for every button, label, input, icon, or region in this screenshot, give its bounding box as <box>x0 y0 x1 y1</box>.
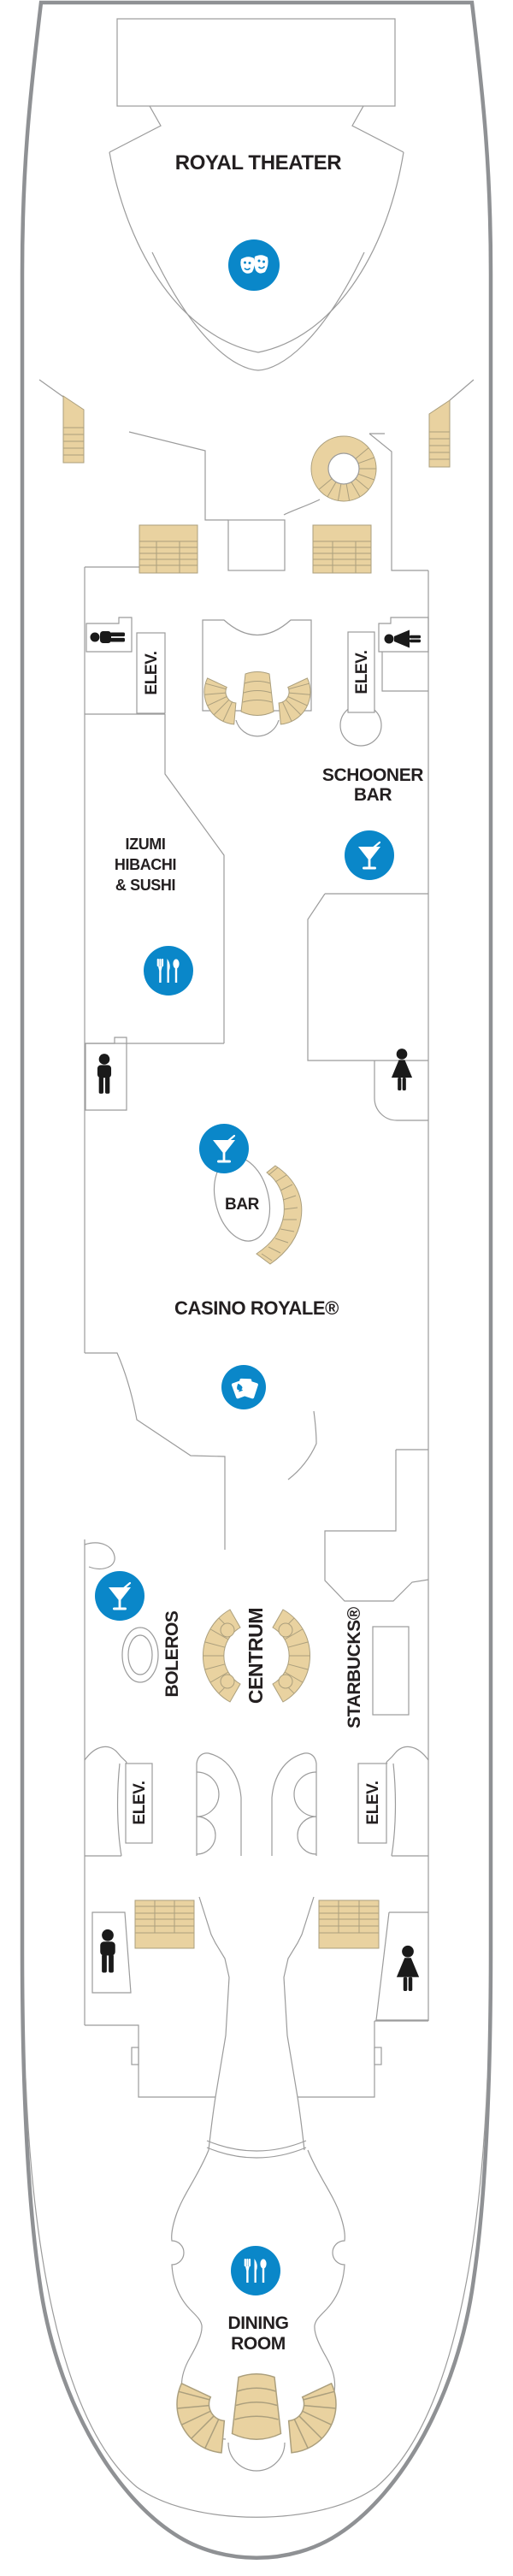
martini-icon <box>345 830 394 880</box>
schooner-bar-label: SCHOONER <box>322 765 423 785</box>
izumi-label: & SUSHI <box>115 877 175 894</box>
izumi-label: HIBACHI <box>115 856 176 873</box>
elevator-label: ELEV. <box>131 1781 149 1824</box>
aft-stair-block-left <box>135 1900 194 1948</box>
elevator-label: ELEV. <box>353 650 371 694</box>
elevator-label: ELEV. <box>364 1781 382 1824</box>
bar-label: BAR <box>225 1196 260 1214</box>
royal-theater-label: ROYAL THEATER <box>175 151 341 174</box>
ship-hull-outline <box>22 3 491 2558</box>
dining-utensils-icon <box>144 946 193 996</box>
dining-room-label: DINING <box>227 2313 288 2333</box>
deck-plan-svg: ROYAL THEATER SCHOONER BAR IZUMI HIBACHI… <box>0 0 513 2576</box>
aft-stair-block-right <box>319 1900 379 1948</box>
martini-icon <box>95 1571 144 1621</box>
upper-stair-block-left <box>139 525 198 573</box>
starbucks-label: STARBUCKS® <box>345 1606 364 1728</box>
dining-room-label: ROOM <box>231 2334 286 2354</box>
aft-wall-notch-left <box>132 2047 139 2065</box>
schooner-bar-label: BAR <box>354 785 392 805</box>
centrum-label: CENTRUM <box>245 1608 267 1704</box>
center-room <box>228 520 285 570</box>
theater-masks-icon <box>228 239 280 291</box>
izumi-label: IZUMI <box>126 836 166 853</box>
aft-wall-notch-right <box>374 2047 381 2065</box>
dining-utensils-icon <box>231 2246 280 2295</box>
starbucks-counter <box>373 1627 409 1715</box>
deck-plan-page: ROYAL THEATER SCHOONER BAR IZUMI HIBACHI… <box>0 0 513 2576</box>
casino-royale-label: CASINO ROYALE® <box>174 1297 339 1319</box>
martini-icon <box>199 1124 249 1173</box>
elevator-label: ELEV. <box>143 651 161 694</box>
casino-cards-icon <box>221 1365 266 1409</box>
spiral-staircase <box>311 436 376 501</box>
upper-stair-block-right <box>313 525 371 573</box>
boleros-label: BOLEROS <box>162 1610 182 1697</box>
